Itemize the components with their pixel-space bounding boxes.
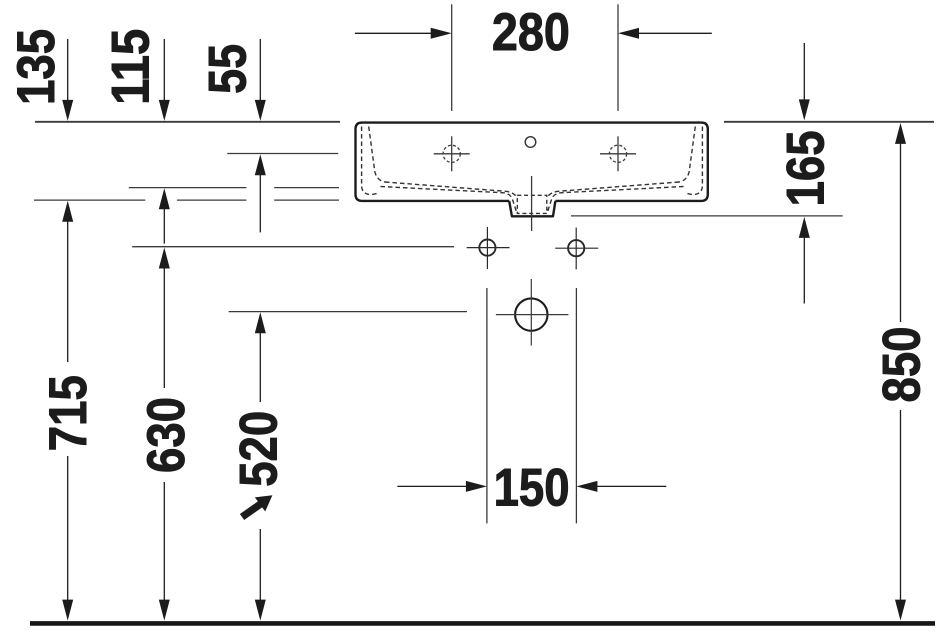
svg-text:55: 55 [198, 44, 257, 94]
svg-text:165: 165 [776, 130, 835, 206]
svg-text:280: 280 [492, 3, 570, 62]
svg-text:630: 630 [137, 397, 196, 473]
svg-text:135: 135 [7, 29, 66, 105]
svg-text:520: 520 [230, 411, 289, 487]
svg-text:150: 150 [494, 459, 570, 518]
svg-text:850: 850 [872, 327, 931, 403]
svg-text:715: 715 [39, 375, 98, 451]
svg-text:115: 115 [101, 29, 160, 105]
